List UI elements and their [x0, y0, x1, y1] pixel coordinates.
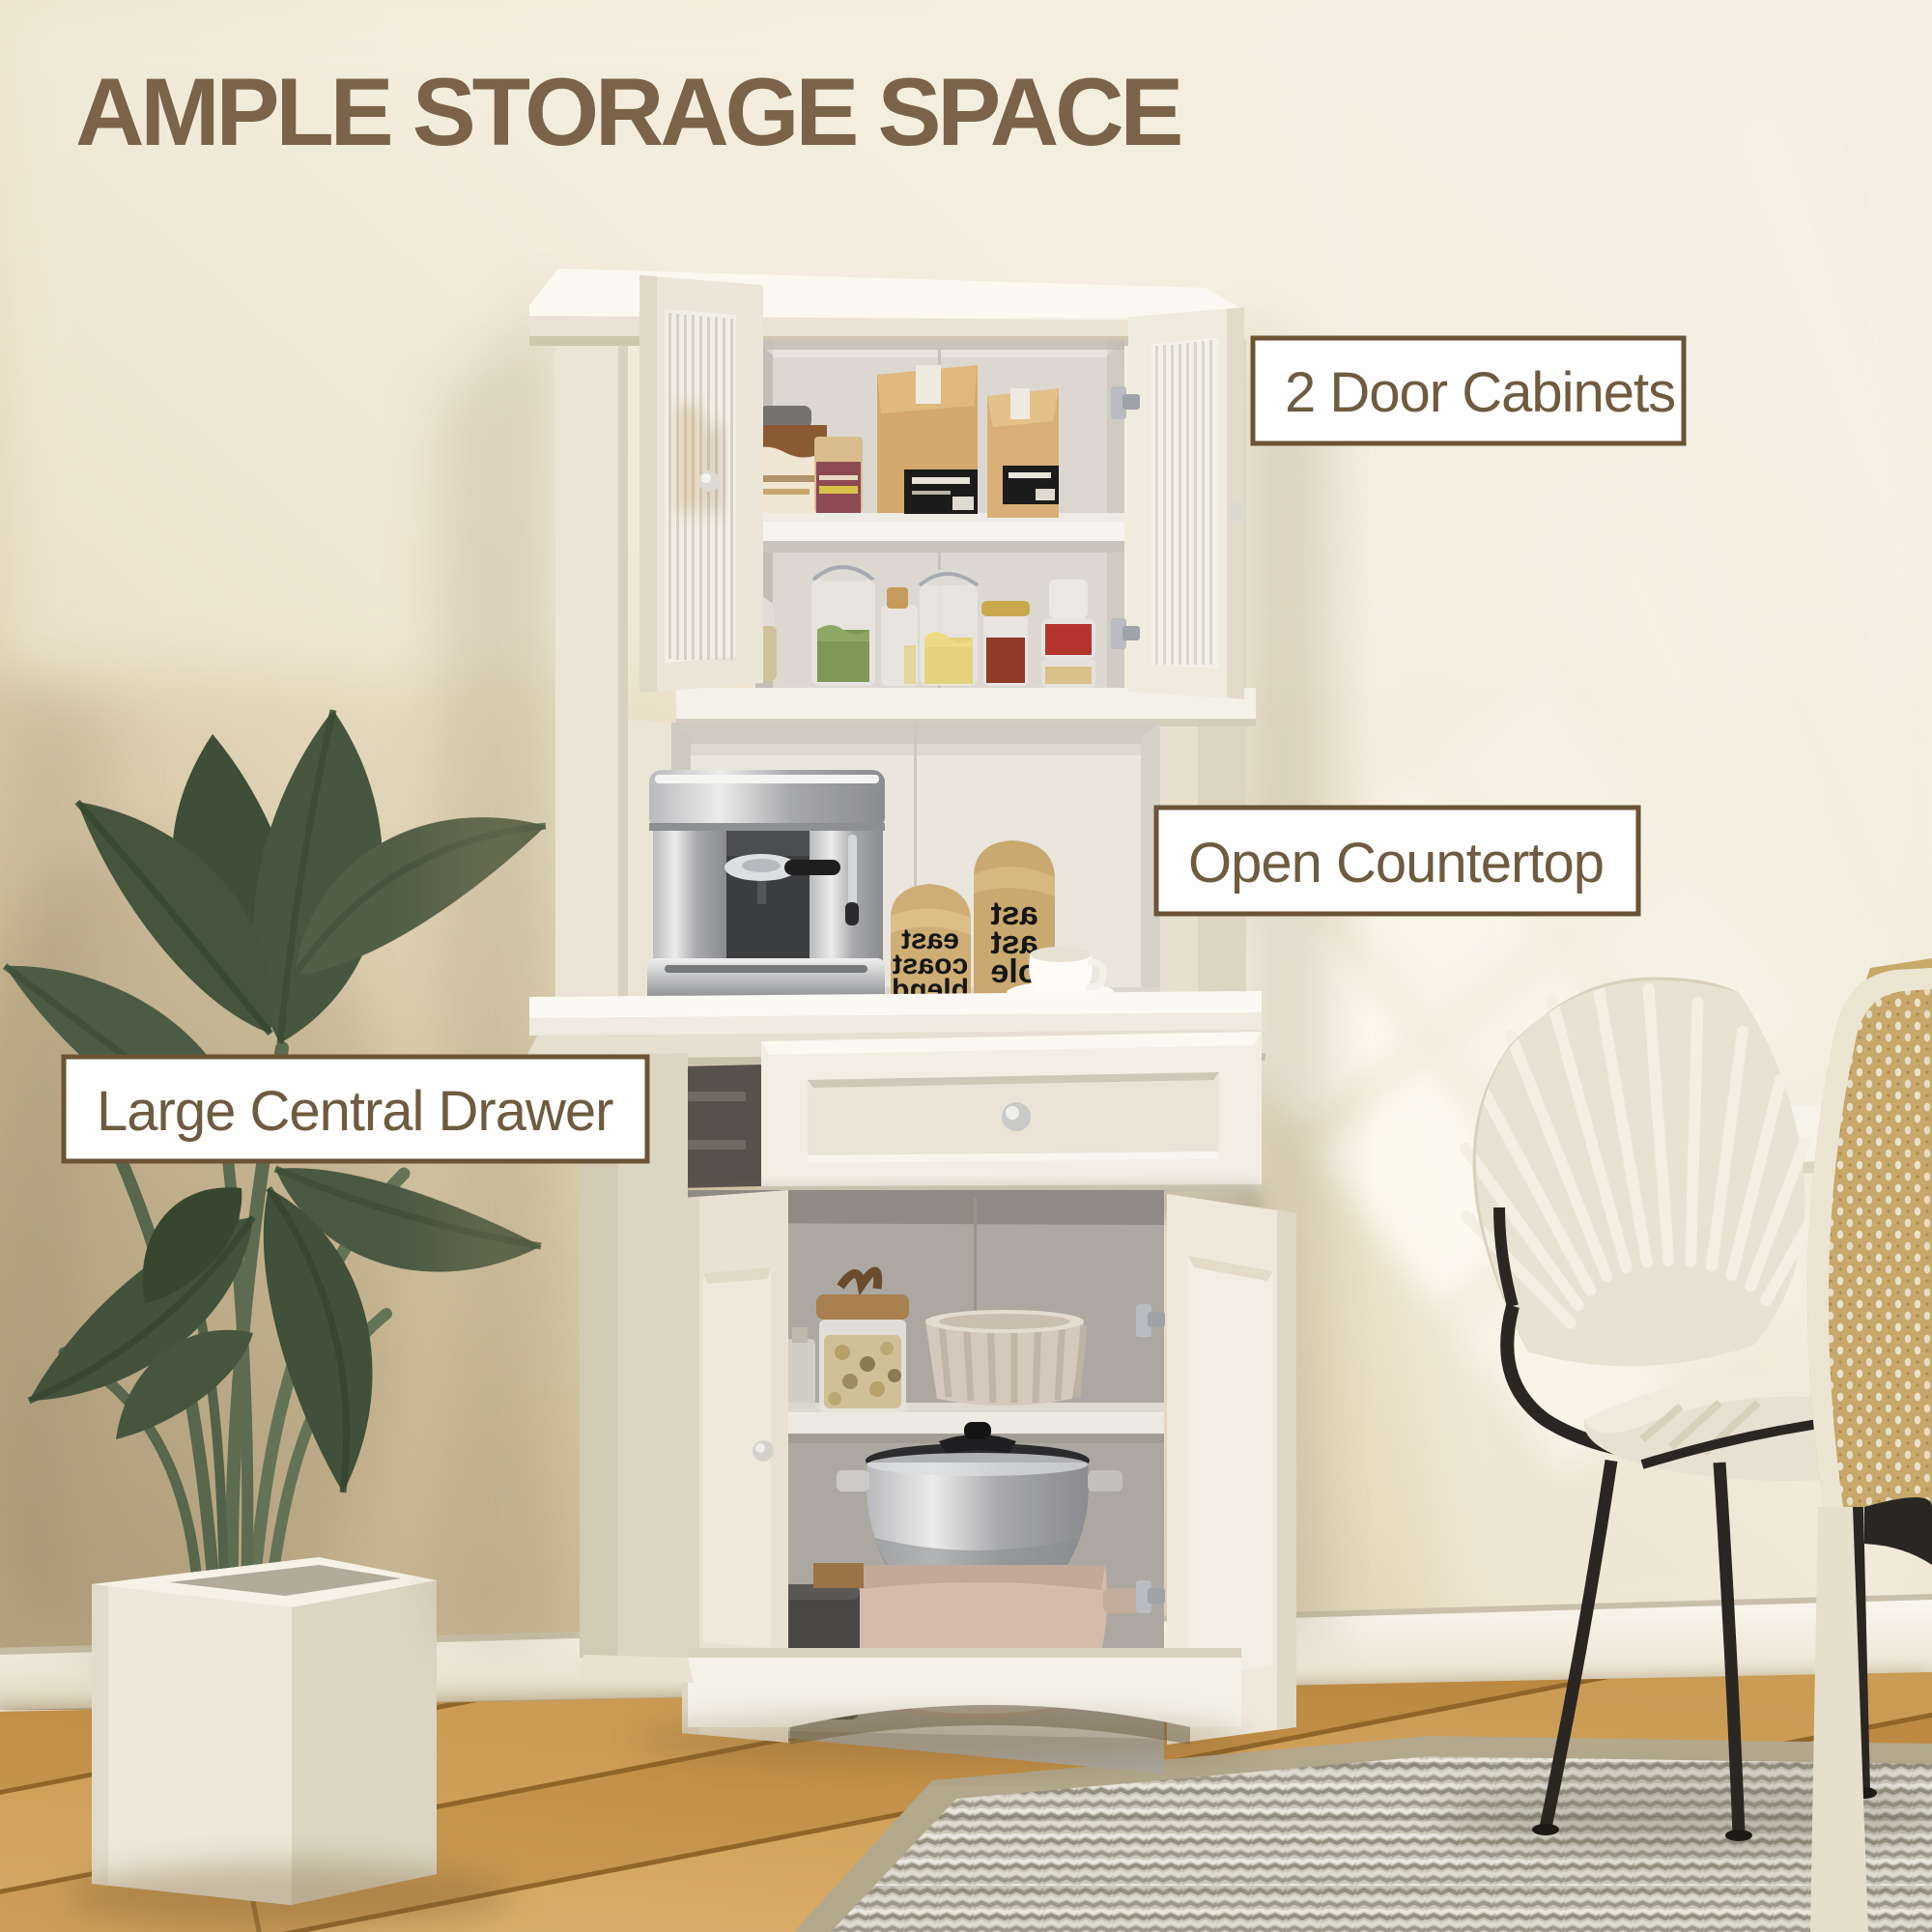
svg-text:Large Central Drawer: Large Central Drawer	[97, 1080, 613, 1143]
svg-text:Open Countertop: Open Countertop	[1188, 832, 1604, 895]
svg-text:AMPLE STORAGE SPACE: AMPLE STORAGE SPACE	[75, 58, 1180, 165]
svg-text:2 Door Cabinets: 2 Door Cabinets	[1285, 361, 1675, 424]
